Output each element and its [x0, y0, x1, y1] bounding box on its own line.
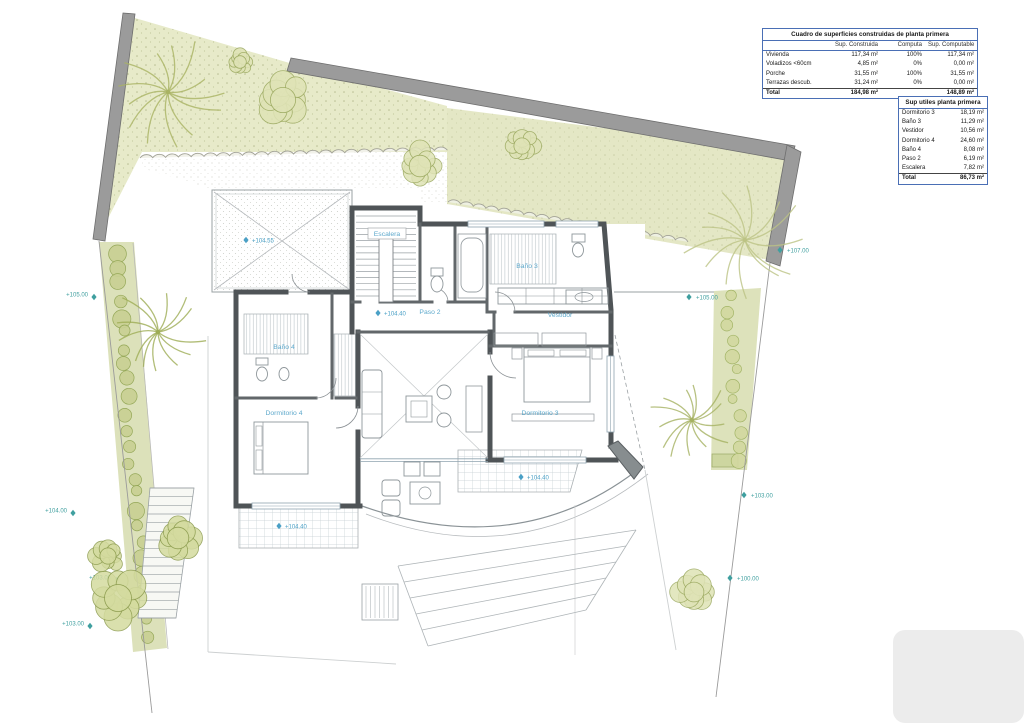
cell-value: 0,00 m² — [925, 60, 977, 69]
cell-value: 31,55 m² — [827, 70, 881, 79]
col-header: Sup. Construida — [827, 41, 881, 51]
cell-value: 100% — [881, 70, 925, 79]
cell-total-label: Total — [899, 173, 951, 183]
col-header: Sup. Computable — [925, 41, 977, 51]
cell-value: 117,34 m² — [925, 51, 977, 60]
room-label-paso2: Paso 2 — [419, 309, 440, 316]
floor-plan-drawing: Escalera Baño 3 Paso 2 Vestidor Baño 4 D… — [0, 0, 1024, 723]
room-label-bano3: Baño 3 — [516, 263, 538, 270]
level-marker: +105.00 — [696, 296, 719, 302]
cell-label: Vestidor — [899, 127, 951, 136]
bush — [670, 569, 715, 610]
cell-label: Baño 4 — [899, 146, 951, 155]
cell-value: 18,19 m² — [951, 109, 987, 118]
level-marker: +104.55 — [252, 239, 275, 245]
cell-value: 10,56 m² — [951, 127, 987, 136]
level-marker: +105.00 — [66, 293, 89, 299]
room-label-dormitorio4: Dormitorio 4 — [265, 410, 302, 417]
level-marker: +103.00 — [751, 494, 774, 500]
cell-value: 6,19 m² — [951, 155, 987, 164]
cell-label: Porche — [763, 70, 827, 79]
cell-label: Voladizos <60cm — [763, 60, 827, 69]
cell-value: 31,55 m² — [925, 70, 977, 79]
cell-label: Dormitorio 4 — [899, 137, 951, 146]
level-marker: +104.40 — [527, 476, 550, 482]
level-marker: +103.00 — [62, 622, 85, 628]
cell-value: 0,00 m² — [925, 79, 977, 88]
cell-value: 7,82 m² — [951, 164, 987, 173]
cell-value: 0% — [881, 79, 925, 88]
level-marker: +104.40 — [285, 525, 308, 531]
stair-newel — [379, 238, 393, 302]
cell-label: Paso 2 — [899, 155, 951, 164]
cell-label: Terrazas descub. — [763, 79, 827, 88]
col-header: Computa — [881, 41, 925, 51]
cell-value: 0% — [881, 60, 925, 69]
cell-value: 100% — [881, 51, 925, 60]
table-title: Cuadro de superficies construidas de pla… — [763, 29, 977, 41]
cell-value: 31,24 m² — [827, 79, 881, 88]
level-marker: +104.00 — [45, 509, 68, 515]
toilet — [257, 367, 268, 381]
cell-label: Baño 3 — [899, 118, 951, 127]
east-terrace — [458, 450, 582, 492]
cell-total-label: Total — [763, 88, 827, 98]
plan-sheet: Escalera Baño 3 Paso 2 Vestidor Baño 4 D… — [0, 0, 1024, 723]
coffee-table — [406, 396, 432, 422]
cell-label: Vivienda — [763, 51, 827, 60]
cell-label: Dormitorio 3 — [899, 109, 951, 118]
sink-vanity — [566, 290, 602, 304]
level-marker: +100.00 — [737, 577, 760, 583]
table-title: Sup utiles planta primera — [899, 97, 987, 109]
bidet — [279, 368, 289, 381]
room-label-bano4: Baño 4 — [273, 344, 295, 351]
cell-value: 4,85 m² — [827, 60, 881, 69]
toilet — [573, 243, 584, 257]
cell-value: 117,34 m² — [827, 51, 881, 60]
level-marker: +107.00 — [787, 249, 810, 255]
cell-value: 8,08 m² — [951, 146, 987, 155]
cell-total-value: 184,98 m² — [827, 88, 881, 98]
title-block-placeholder — [893, 630, 1024, 723]
room-label-vestidor: Vestidor — [548, 312, 573, 319]
room-label-escalera: Escalera — [374, 231, 401, 238]
cell-label: Escalera — [899, 164, 951, 173]
col-header — [763, 41, 827, 51]
cell-value: 11,29 m² — [951, 118, 987, 127]
bush — [88, 540, 123, 572]
room-label-dormitorio3: Dormitorio 3 — [521, 410, 558, 417]
closet — [334, 334, 356, 396]
armchair — [437, 385, 451, 399]
cell-value: 24,60 m² — [951, 137, 987, 146]
constructed-areas-table: Cuadro de superficies construidas de pla… — [762, 28, 978, 99]
armchair — [437, 413, 451, 427]
toilet-tank — [431, 268, 443, 276]
useful-areas-table: Sup utiles planta primera Dormitorio 3 1… — [898, 96, 988, 185]
level-marker: +104.40 — [384, 312, 407, 318]
sofa — [362, 370, 382, 438]
cell-total-value: 86,73 m² — [951, 173, 987, 183]
toilet — [431, 276, 443, 292]
